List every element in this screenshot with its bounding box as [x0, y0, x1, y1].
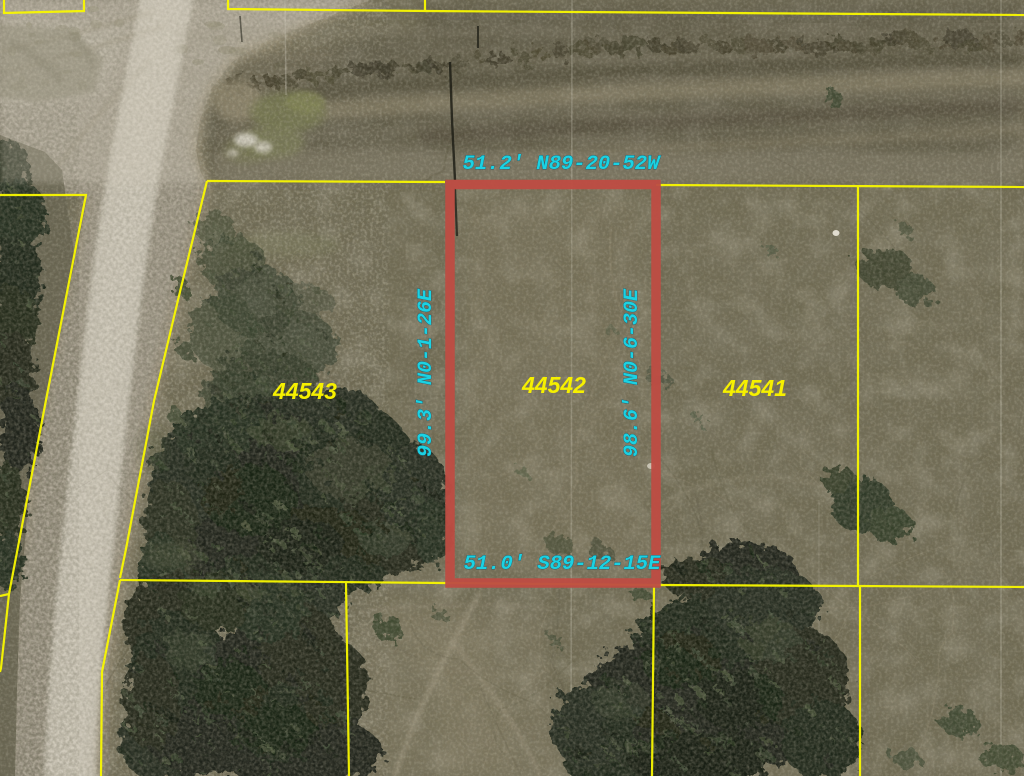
svg-text:44543: 44543 — [272, 378, 337, 404]
svg-text:51.2' N89-20-52W: 51.2' N89-20-52W — [463, 153, 662, 176]
svg-text:44542: 44542 — [521, 372, 586, 398]
svg-text:99.3' N0-1-26E: 99.3' N0-1-26E — [415, 288, 438, 457]
svg-text:98.6' N0-6-30E: 98.6' N0-6-30E — [621, 288, 644, 457]
svg-text:51.0' S89-12-15E: 51.0' S89-12-15E — [464, 553, 662, 576]
svg-text:44541: 44541 — [722, 375, 787, 401]
